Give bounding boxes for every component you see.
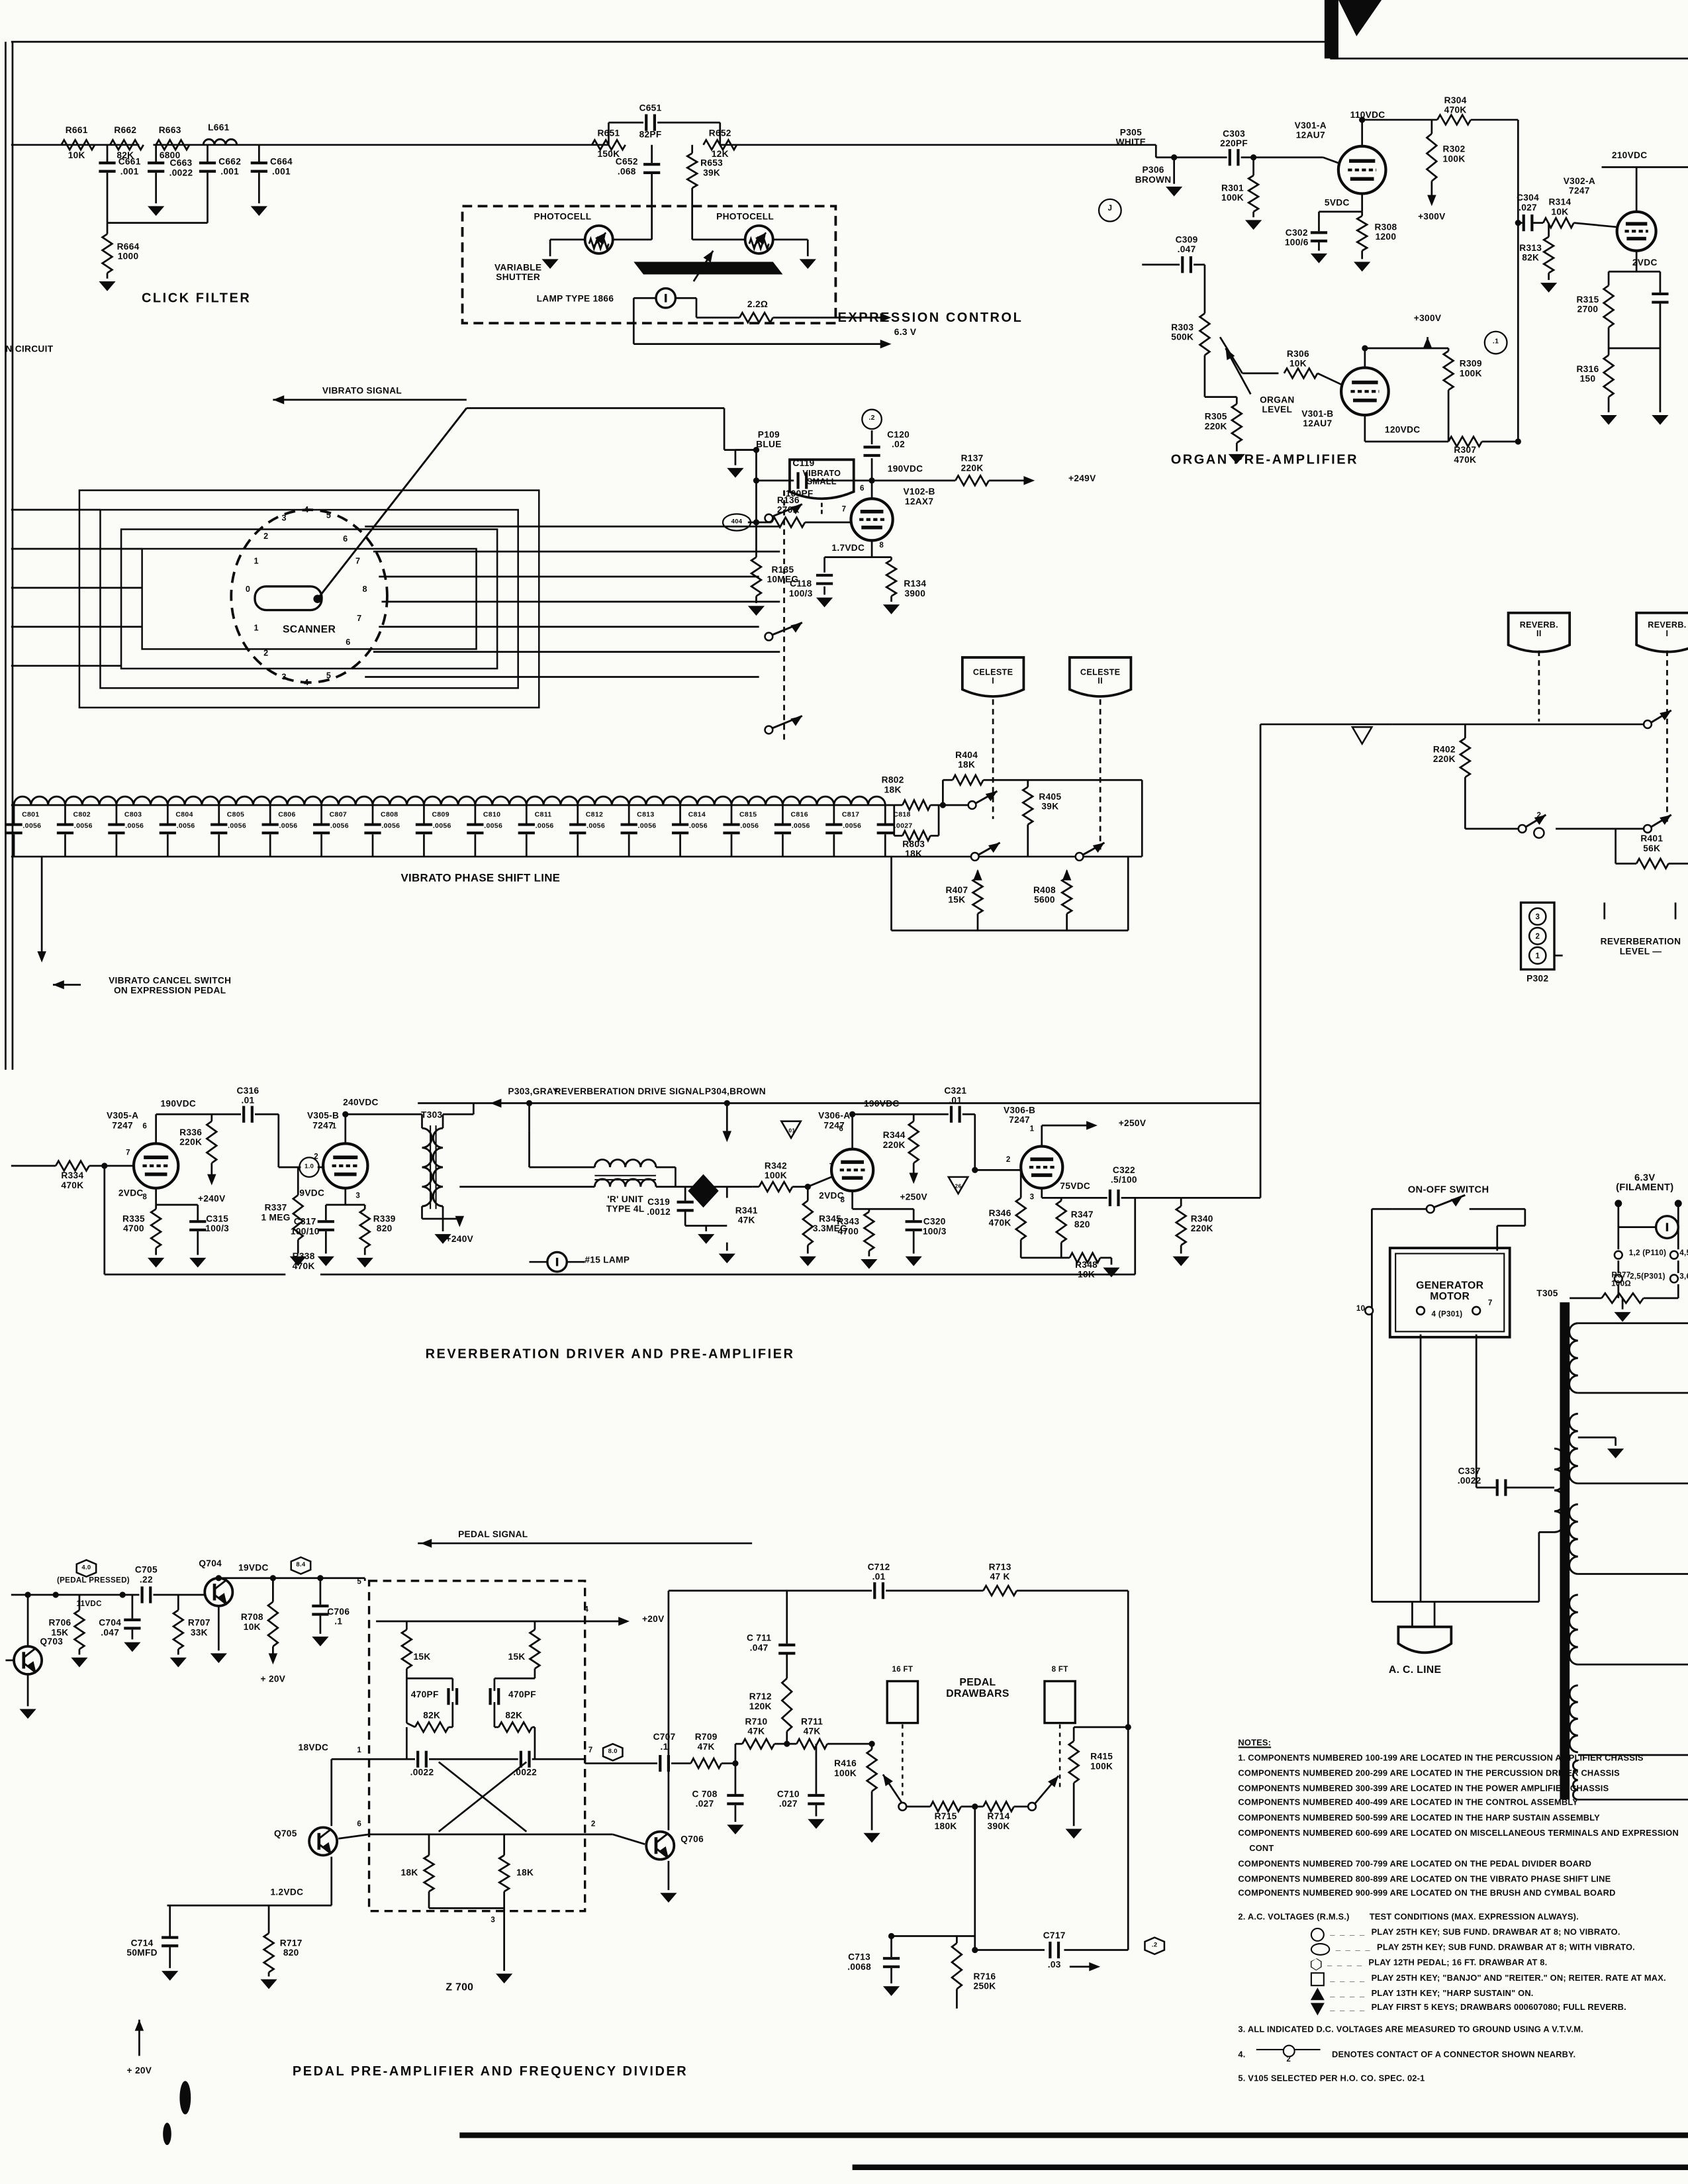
capacitor-label: .0027 (894, 824, 913, 831)
component-label: 5 (326, 673, 331, 681)
component-label: R314 10K (1548, 199, 1571, 218)
component-label: 7 (357, 616, 361, 624)
component-label: T303 (421, 1112, 442, 1121)
component-label: 2 (263, 533, 268, 542)
capacitor-label: C817 (842, 812, 859, 820)
component-label: 8.0 (608, 1749, 618, 1756)
notes-block: NOTES: 1. COMPONENTS NUMBERED 100-199 AR… (1238, 1737, 1686, 2087)
capacitor-label: C816 (790, 812, 808, 820)
component-label: 2.2Ω (747, 302, 768, 311)
capacitor-label: .0056 (740, 824, 759, 831)
component-label: Q705 (274, 1831, 297, 1840)
component-label: 6 (357, 1822, 361, 1830)
component-label: R313 82K (1519, 246, 1542, 265)
component-label: C705 .22 (135, 1567, 158, 1586)
component-label: 10K (68, 153, 85, 162)
component-label: C315 100/3 (205, 1216, 229, 1235)
component-label: C319 .0012 (647, 1200, 671, 1219)
dashed-leader: _ _ _ _ (1330, 1987, 1366, 2002)
capacitor-label: .0056 (228, 824, 246, 831)
test-condition-text: PLAY 25TH KEY; "BANJO" AND "REITER." ON;… (1372, 1971, 1666, 1987)
component-label: R346 470K (989, 1211, 1011, 1230)
component-label: R716 250K (974, 1974, 996, 1993)
dashed-leader: _ _ _ _ (1336, 1942, 1372, 1957)
component-label: P302 (1526, 976, 1548, 985)
note-line: COMPONENTS NUMBERED 700-799 ARE LOCATED … (1238, 1858, 1686, 1873)
component-label: J (1107, 207, 1112, 214)
capacitor-label: C812 (586, 812, 603, 820)
component-label: R347 820 (1071, 1212, 1094, 1231)
component-label: P304,BROWN (705, 1088, 766, 1098)
component-label: 6.3 V (894, 330, 917, 339)
component-label: CELESTE I (973, 669, 1013, 687)
test-condition-row: _ _ _ _PLAY 25TH KEY; SUB FUND. DRAWBAR … (1238, 1926, 1686, 1942)
component-label: 120VDC (1385, 427, 1421, 436)
capacitor-label: C807 (330, 812, 347, 820)
component-label: 4 (304, 506, 308, 515)
note-line: COMPONENTS NUMBERED 200-299 ARE LOCATED … (1238, 1767, 1686, 1782)
component-label: 9VDC (299, 1190, 324, 1200)
component-label: R309 100K (1460, 361, 1482, 380)
component-label: 8 (142, 1195, 147, 1203)
component-label: 5VDC (1325, 200, 1350, 209)
capacitor-label: C813 (637, 812, 654, 820)
note-line: COMPONENTS NUMBERED 600-699 ARE LOCATED … (1238, 1828, 1686, 1858)
capacitor-label: .0056 (23, 824, 41, 831)
component-label: 3 (355, 1194, 360, 1202)
tri-down-symbol-icon (1311, 2003, 1325, 2016)
component-label: R713 47 K (989, 1564, 1011, 1584)
component-label: R707 33K (188, 1620, 211, 1639)
section-title: REVERBERATION DRIVER AND PRE-AMPLIFIER (426, 1349, 795, 1362)
component-label: R407 15K (945, 887, 968, 906)
test-condition-text: PLAY 25TH KEY; SUB FUND. DRAWBAR AT 8; W… (1377, 1942, 1635, 1957)
component-label: 8 (363, 586, 367, 594)
component-label: C 711 .047 (747, 1635, 771, 1654)
component-label: SCANNER (283, 624, 336, 636)
component-label: Q706 (680, 1836, 704, 1846)
component-label: 5 (357, 1580, 361, 1588)
capacitor-label: .0056 (279, 824, 298, 831)
component-label: 1 (1030, 1127, 1035, 1135)
component-label: 190VDC (161, 1101, 197, 1110)
component-label: 404 (731, 519, 743, 526)
component-label: 5 (326, 512, 331, 521)
component-label: R712 120K (749, 1694, 772, 1713)
component-label: REVERB. II (1520, 622, 1558, 640)
component-label: ON-OFF SWITCH (1408, 1186, 1489, 1196)
component-label: 240VDC (343, 1100, 379, 1109)
component-label: R408 5600 (1033, 887, 1056, 906)
component-label: C652 .068 (616, 159, 638, 178)
component-label: P305 WHITE (1116, 130, 1147, 149)
tri-up-symbol-icon (1311, 1988, 1325, 2001)
capacitor-label: C809 (432, 812, 449, 820)
capacitor-label: C814 (688, 812, 706, 820)
component-label: R405 39K (1039, 794, 1061, 814)
capacitor-label: .0056 (792, 824, 810, 831)
component-label: 3 (1030, 1195, 1035, 1203)
test-condition-text: PLAY 12TH PEDAL; 16 FT. DRAWBAR AT 8. (1368, 1957, 1547, 1972)
component-label: C322 .5/100 (1111, 1167, 1137, 1186)
component-label: + 20V (127, 2067, 152, 2077)
circle-symbol-icon (1311, 1927, 1325, 1941)
component-label: 2 (591, 1822, 596, 1830)
component-label: C303 220PF (1220, 131, 1248, 150)
component-label: R348 10K (1075, 1262, 1098, 1281)
component-label: R316 150 (1577, 367, 1599, 386)
component-label: R401 56K (1640, 836, 1663, 855)
capacitor-label: .0056 (536, 824, 554, 831)
component-label: R404 18K (955, 752, 978, 771)
capacitor-label: C806 (278, 812, 295, 820)
component-label: C704 .047 (99, 1620, 121, 1639)
component-label: Q703 (40, 1638, 63, 1648)
component-label: P306 BROWN (1135, 167, 1172, 187)
component-label: 6 (860, 486, 865, 494)
component-label: REVERBERATION DRIVE SIGNAL (555, 1088, 705, 1098)
component-label: R343 4700 (837, 1219, 859, 1238)
connector-contact-icon: 2 (1256, 2045, 1321, 2068)
component-label: R717 820 (280, 1940, 303, 1960)
note-line: COMPONENTS NUMBERED 300-399 ARE LOCATED … (1238, 1782, 1686, 1797)
component-label: 2 (1006, 1158, 1011, 1166)
component-label: C717 (1043, 1932, 1066, 1942)
component-label: ORGAN LEVEL (1260, 397, 1295, 416)
component-label: .2 (1152, 1942, 1158, 1949)
component-label: 6.3V (FILAMENT) (1616, 1174, 1673, 1194)
component-label: R335 4700 (122, 1216, 145, 1235)
component-label: C309 .047 (1176, 237, 1198, 256)
capacitor-label: .0056 (638, 824, 657, 831)
component-label: 7 (829, 1164, 834, 1172)
component-label: P303,GRAY (508, 1088, 559, 1098)
component-label: 10 (1356, 1307, 1366, 1315)
section-title: PEDAL PRE-AMPLIFIER AND FREQUENCY DIVIDE… (293, 2065, 688, 2079)
note-line: 4.2DENOTES CONTACT OF A CONNECTOR SHOWN … (1238, 2045, 1686, 2068)
dashed-leader: _ _ _ _ (1330, 1926, 1366, 1942)
component-label: +249V (1068, 476, 1096, 485)
hexagon-symbol-icon (1311, 1958, 1322, 1971)
component-label: N CIRCUIT (5, 346, 53, 356)
component-label: R136 270K (777, 497, 800, 516)
component-label: 4,5 (1679, 1251, 1688, 1259)
component-label: C664 .001 (270, 159, 293, 178)
component-label: 190VDC (888, 466, 923, 475)
component-label: +20V (642, 1617, 665, 1626)
component-label: 8 (879, 544, 884, 551)
component-label: C714 50MFD (126, 1940, 157, 1960)
component-label: C119 (792, 460, 814, 469)
dashed-leader: _ _ _ _ (1327, 1957, 1363, 1972)
section-title: EXPRESSION CONTROL (838, 312, 1023, 326)
note-line: 1. COMPONENTS NUMBERED 100-199 ARE LOCAT… (1238, 1752, 1686, 1767)
component-label: R653 39K (700, 160, 723, 179)
component-label: R308 1200 (1374, 224, 1397, 244)
component-label: 470PF (508, 1691, 536, 1701)
test-condition-row: _ _ _ _PLAY 25TH KEY; SUB FUND. DRAWBAR … (1238, 1942, 1686, 1957)
component-label: R664 1000 (117, 244, 140, 263)
component-label: VIBRATO SMALL (802, 470, 841, 488)
component-label: 1,2 (P110) (1629, 1251, 1667, 1259)
component-label: A. C. LINE (1389, 1664, 1441, 1676)
component-label: .0022 (513, 1770, 537, 1779)
capacitor-label: C803 (124, 812, 142, 820)
component-label: R137 220K (961, 455, 984, 475)
component-label: 6 (343, 536, 348, 545)
component-label: PHOTOCELL (534, 214, 592, 223)
component-label: R714 390K (988, 1814, 1010, 1833)
component-label: V306-B 7247 (1004, 1108, 1035, 1127)
component-label: 3 (282, 674, 287, 683)
component-label: R341 47K (735, 1208, 758, 1227)
note-line: 5. V105 SELECTED PER H.O. CO. SPEC. 02-1 (1238, 2072, 1686, 2087)
component-label: C661 .001 (118, 159, 141, 178)
component-label: R340 220K (1191, 1216, 1213, 1235)
component-label: R651 (597, 130, 620, 140)
component-label: 190VDC (864, 1101, 900, 1110)
schematic-page: 321 R66110KR66282KR6636800L661C661 .001C… (0, 0, 1688, 2184)
component-label: C712 .01 (868, 1564, 890, 1584)
capacitor-label: .0056 (433, 824, 451, 831)
component-label: C706 .1 (327, 1609, 350, 1628)
component-label: +300V (1418, 214, 1446, 223)
component-label: 15K (508, 1654, 526, 1664)
section-title: CLICK FILTER (142, 293, 251, 307)
capacitor-label: .0056 (381, 824, 400, 831)
component-label: R802 18K (882, 777, 904, 796)
component-label: C663 .0022 (169, 160, 193, 179)
component-label: R416 100K (834, 1761, 857, 1780)
component-label: 2 (1536, 814, 1541, 822)
component-label: 6 (839, 1127, 843, 1135)
capacitor-label: C810 (483, 812, 500, 820)
component-label: VARIABLE SHUTTER (494, 265, 541, 284)
component-label: C651 (639, 105, 662, 115)
component-label: + 20V (261, 1676, 286, 1685)
component-label: 18K (401, 1870, 418, 1879)
capacitor-label: C818 (893, 812, 910, 820)
component-label: .1 (1493, 339, 1499, 346)
component-label: +250V (1119, 1121, 1147, 1130)
component-label: Q704 (199, 1561, 222, 1570)
capacitor-label: C805 (227, 812, 244, 820)
component-label: R302 100K (1443, 146, 1466, 166)
component-label: PHOTOCELL (716, 214, 774, 223)
component-label: C320 100/3 (923, 1219, 947, 1238)
component-label: 1.0 (305, 1164, 314, 1170)
component-label: V301-B 12AU7 (1301, 411, 1333, 430)
component-label: 2VDC (1632, 260, 1658, 269)
component-label: 75VDC (1060, 1183, 1090, 1192)
capacitor-label: .0056 (484, 824, 502, 831)
component-label: R338 470K (293, 1254, 315, 1273)
component-label: L661 (208, 124, 229, 134)
test-condition-text: PLAY FIRST 5 KEYS; DRAWBARS 000607080; F… (1372, 2002, 1626, 2017)
component-label: R709 47K (695, 1734, 718, 1754)
component-label: V305-A 7247 (107, 1113, 138, 1132)
component-label: P109 BLUE (756, 432, 781, 451)
note-number: 4. (1238, 2049, 1245, 2064)
component-label: 2 (263, 650, 268, 659)
component-label: 'R' UNIT TYPE 4L (606, 1197, 645, 1216)
component-label: V102-B 12AX7 (903, 489, 935, 508)
component-label: 8.4 (296, 1562, 305, 1569)
component-label: LAMP TYPE 1866 (537, 296, 614, 305)
component-label: +250V (900, 1194, 927, 1204)
component-label: R715 180K (935, 1814, 957, 1833)
component-label: 26 (955, 1184, 962, 1190)
component-label: 4 (P301) (1432, 1312, 1463, 1320)
component-label: (PEDAL PRESSED) (57, 1578, 130, 1586)
component-label: R402 220K (1433, 747, 1456, 766)
component-label: 3,6 (1679, 1274, 1688, 1282)
component-label: 11VDC (77, 1602, 102, 1610)
component-label: .0022 (410, 1770, 434, 1779)
component-label: 16 FT (892, 1668, 913, 1676)
component-label: 3 (491, 1918, 495, 1926)
component-label: 1 (254, 625, 258, 634)
component-label: 3 (282, 515, 287, 524)
test-condition-row: _ _ _ _PLAY 13TH KEY; "HARP SUSTAIN" ON. (1238, 1987, 1686, 2002)
component-label: 1 (332, 1124, 337, 1132)
test-condition-text: PLAY 25TH KEY; SUB FUND. DRAWBAR AT 8; N… (1372, 1926, 1620, 1942)
component-label: R803 18K (902, 841, 925, 861)
capacitor-label: C808 (381, 812, 398, 820)
component-label: Z 700 (445, 1982, 473, 1993)
component-label: R336 220K (179, 1130, 202, 1149)
component-label: C707 .1 (653, 1734, 676, 1754)
component-label: PEDAL DRAWBARS (946, 1677, 1009, 1699)
note-line: COMPONENTS NUMBERED 800-899 ARE LOCATED … (1238, 1873, 1686, 1888)
component-label: R711 47K (801, 1719, 823, 1738)
component-label: 7 (126, 1151, 130, 1159)
component-label: R303 500K (1171, 324, 1194, 344)
component-label: R134 3900 (904, 581, 926, 600)
component-label: 6 (142, 1124, 147, 1132)
component-label: R663 (159, 128, 181, 137)
component-label: +240V (198, 1196, 226, 1205)
component-label: 4 (584, 1607, 588, 1615)
component-label: 4.0 (81, 1565, 91, 1572)
component-label: R708 10K (241, 1615, 263, 1634)
notes-heading: NOTES: (1238, 1737, 1686, 1752)
component-label: 470PF (411, 1691, 439, 1701)
component-label: R304 470K (1444, 98, 1467, 117)
component-label: C316 .01 (237, 1088, 259, 1107)
component-label: C304 .027 (1517, 195, 1539, 214)
component-label: C 708 .027 (692, 1791, 718, 1811)
component-label: R315 2700 (1577, 297, 1599, 316)
capacitor-label: .0056 (689, 824, 708, 831)
component-label: C321 .01 (944, 1088, 966, 1107)
component-label: 19VDC (238, 1565, 269, 1574)
note-line: 2. A.C. VOLTAGES (R.M.S.) TEST CONDITION… (1238, 1911, 1686, 1926)
component-label: 2VDC (118, 1190, 144, 1200)
component-label: C337 .0022 (1458, 1468, 1481, 1488)
component-label: 18K (516, 1870, 534, 1879)
component-label: R307 470K (1454, 448, 1476, 467)
component-label: C710 .027 (777, 1791, 800, 1811)
capacitor-label: .0056 (586, 824, 605, 831)
component-label: V302-A 7247 (1564, 179, 1595, 198)
component-label: C662 .001 (218, 159, 241, 178)
component-label: V301-A 12AU7 (1295, 122, 1327, 142)
component-label: REVERBERATION LEVEL — (1601, 939, 1681, 958)
component-label: 6 (346, 639, 350, 647)
component-label: R344 220K (883, 1133, 906, 1152)
capacitor-label: .0056 (125, 824, 144, 831)
note-text: DENOTES CONTACT OF A CONNECTOR SHOWN NEA… (1332, 2049, 1575, 2064)
component-label: C713 .0068 (847, 1954, 871, 1973)
component-label: R339 820 (373, 1216, 396, 1235)
capacitor-label: C802 (73, 812, 90, 820)
component-label: R342 100K (765, 1163, 787, 1182)
component-label: .03 (1048, 1962, 1061, 1971)
capacitor-label: .0056 (330, 824, 349, 831)
component-label: 82K (423, 1713, 440, 1722)
test-condition-row: _ _ _ _PLAY FIRST 5 KEYS; DRAWBARS 00060… (1238, 2002, 1686, 2017)
test-condition-row: _ _ _ _PLAY 12TH PEDAL; 16 FT. DRAWBAR A… (1238, 1957, 1686, 1972)
component-label: 7 (842, 507, 847, 515)
component-label: PEDAL SIGNAL (458, 1531, 528, 1541)
component-label: 1 (254, 558, 258, 567)
component-label: C118 100/3 (789, 581, 813, 600)
component-label: R301 100K (1221, 185, 1244, 205)
note-line: COMPONENTS NUMBERED 500-599 ARE LOCATED … (1238, 1813, 1686, 1828)
component-label: R306 10K (1287, 351, 1309, 370)
note-line: COMPONENTS NUMBERED 900-999 ARE LOCATED … (1238, 1888, 1686, 1903)
component-label: 2 (314, 1155, 318, 1163)
component-label: V306-A 7247 (818, 1113, 850, 1132)
capacitor-label: C804 (175, 812, 193, 820)
ellipse-symbol-icon (1311, 1943, 1330, 1956)
capacitor-label: C815 (739, 812, 757, 820)
component-label: 8 FT (1052, 1668, 1068, 1676)
component-label: R662 (114, 128, 136, 137)
component-label: +240V (446, 1236, 474, 1245)
component-label: VIBRATO CANCEL SWITCH ON EXPRESSION PEDA… (109, 978, 231, 997)
capacitor-label: .0056 (843, 824, 861, 831)
component-label: 4 (304, 679, 308, 688)
component-label: 110VDC (1350, 113, 1385, 122)
square-symbol-icon (1311, 1972, 1325, 1986)
component-label: R415 100K (1090, 1754, 1113, 1773)
component-label: C317 100/10 (291, 1219, 320, 1238)
component-label: 15K (413, 1654, 430, 1664)
component-label: R661 (66, 128, 88, 137)
component-label: R652 (709, 130, 731, 140)
component-label: #15 LAMP (585, 1257, 630, 1266)
capacitor-label: .0056 (177, 824, 195, 831)
component-label: .2 (868, 416, 874, 423)
component-label: C302 100/6 (1285, 230, 1309, 249)
component-label: 1.7VDC (831, 546, 865, 555)
component-label: 7 (588, 1748, 593, 1756)
component-label: C120 .02 (887, 432, 910, 451)
component-label: 210VDC (1612, 153, 1648, 162)
component-label: 2,5(P301) (1630, 1274, 1665, 1282)
section-title: ORGAN PRE-AMPLIFIER (1171, 454, 1358, 468)
dashed-leader: _ _ _ _ (1330, 1971, 1366, 1987)
component-label: R710 47K (745, 1719, 767, 1738)
component-label: REVERB. I (1648, 622, 1686, 640)
component-label: R305 220K (1205, 414, 1227, 433)
component-label: R337 1 MEG (261, 1205, 291, 1224)
component-label: 1 (357, 1748, 361, 1756)
component-label: 82PF (639, 132, 662, 141)
component-label: 7 (1488, 1301, 1493, 1309)
